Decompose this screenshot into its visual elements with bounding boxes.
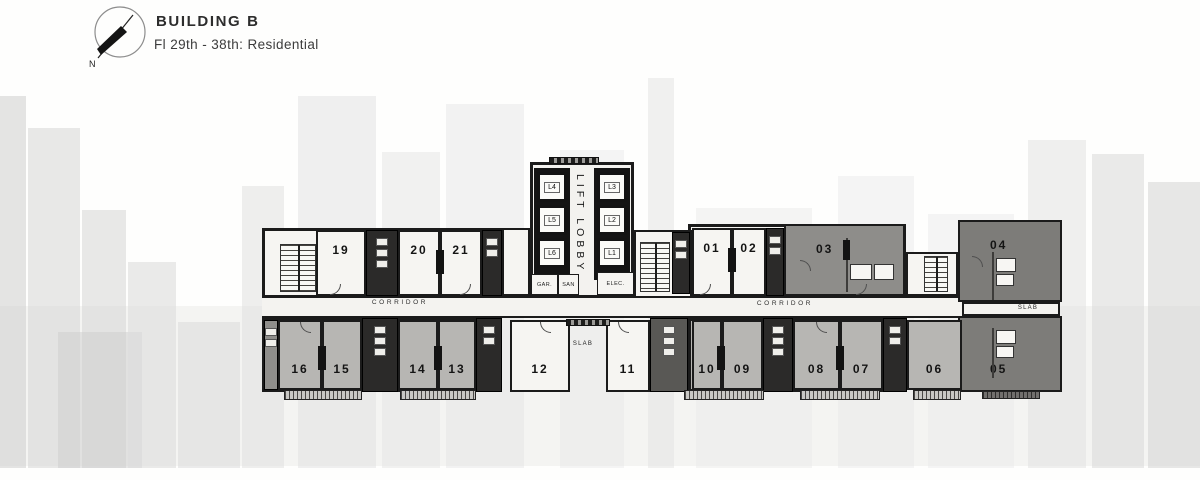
lift-l3[interactable]: L3	[597, 172, 627, 202]
slab-label-center: SLAB	[563, 341, 603, 347]
unit-label: 03	[816, 242, 833, 256]
page-subtitle: Fl 29th - 38th: Residential	[154, 37, 319, 52]
unit-label: 08	[808, 362, 825, 376]
unit-label: 07	[853, 362, 870, 376]
unit-label: 19	[332, 243, 349, 257]
skyline-building	[1148, 182, 1200, 468]
unit-09[interactable]: 09	[722, 320, 763, 390]
balcony	[800, 390, 880, 400]
wall-jamb	[728, 248, 736, 272]
skyline-building	[1092, 154, 1144, 468]
wall-jamb	[836, 346, 844, 370]
bathroom-box	[996, 346, 1014, 358]
stair-west	[280, 244, 316, 292]
partition-line	[992, 252, 994, 300]
unit-08[interactable]: 08	[793, 320, 840, 390]
wall-jamb	[843, 240, 850, 260]
unit-label: 10	[698, 362, 715, 376]
unit-label: 20	[410, 243, 427, 257]
unit-06[interactable]: 06	[907, 320, 962, 390]
unit-label: 02	[740, 241, 757, 255]
louvre-vent	[566, 319, 610, 326]
lift-label: L3	[604, 182, 620, 193]
service-shaft	[763, 318, 793, 392]
unit-15[interactable]: 15	[322, 320, 362, 390]
stair-center	[640, 242, 670, 292]
unit-16[interactable]: 16	[278, 320, 322, 390]
partition-line	[992, 328, 994, 378]
unit-01[interactable]: 01	[692, 228, 732, 296]
page-title: BUILDING B	[156, 13, 260, 30]
unit-label: 04	[990, 238, 1007, 252]
unit-label: 13	[448, 362, 465, 376]
service-shaft	[766, 228, 784, 296]
room-sanitary: SAN	[558, 274, 579, 295]
unit-label: 14	[409, 362, 426, 376]
balcony	[913, 390, 961, 400]
skyline-building	[0, 96, 26, 468]
room-label: GAR.	[537, 282, 552, 288]
stair-east	[924, 256, 948, 292]
unit-label: 06	[926, 362, 943, 376]
unit-label: 09	[734, 362, 751, 376]
room-label: SAN	[562, 282, 575, 288]
lift-label: L5	[544, 215, 560, 226]
unit-label: 01	[703, 241, 720, 255]
bathroom-box	[850, 264, 872, 280]
unit-20[interactable]: 20	[398, 230, 440, 296]
lift-l1[interactable]: L1	[597, 238, 627, 268]
service-shaft	[672, 232, 690, 294]
service-room-west	[502, 228, 530, 296]
lift-label: L6	[544, 248, 560, 259]
lift-l2[interactable]: L2	[597, 205, 627, 235]
unit-19[interactable]: 19	[316, 230, 366, 296]
balcony	[284, 390, 362, 400]
bathroom-box	[996, 330, 1016, 344]
room-garbage: GAR.	[531, 274, 558, 295]
service-shaft	[362, 318, 398, 392]
slab-label-right: SLAB	[998, 305, 1058, 311]
wall-jamb	[318, 346, 326, 370]
floor-plan-page: N BUILDING B Fl 29th - 38th: Residential…	[0, 0, 1200, 480]
unit-label: 12	[531, 362, 548, 376]
north-compass-icon: N	[86, 4, 152, 79]
room-label: ELEC.	[607, 281, 625, 287]
skyline-building	[178, 322, 240, 468]
wall-jamb	[436, 250, 444, 274]
lift-l6[interactable]: L6	[537, 238, 567, 268]
bathroom-box	[996, 258, 1016, 272]
service-shaft	[883, 318, 907, 392]
balcony	[982, 391, 1040, 399]
bathroom-box	[996, 274, 1014, 286]
unit-label: 16	[291, 362, 308, 376]
lift-l5[interactable]: L5	[537, 205, 567, 235]
lift-l4[interactable]: L4	[537, 172, 567, 202]
unit-12[interactable]: 12	[510, 320, 570, 392]
compass-north-label: N	[89, 59, 96, 69]
service-shaft	[366, 230, 398, 296]
unit-label: 21	[452, 243, 469, 257]
lift-label: L2	[604, 215, 620, 226]
unit-label: 15	[333, 362, 350, 376]
unit-label: 11	[620, 362, 637, 376]
wall-jamb	[434, 346, 442, 370]
corridor-label-right: CORRIDOR	[741, 300, 829, 307]
unit-02[interactable]: 02	[732, 228, 766, 296]
room-electrical: ELEC.	[597, 272, 634, 295]
service-shaft	[476, 318, 502, 392]
balcony	[400, 390, 476, 400]
unit-13[interactable]: 13	[438, 320, 476, 390]
service-shaft	[264, 320, 278, 390]
lift-lobby-label: LIFT LOBBY	[574, 174, 586, 273]
service-shaft	[650, 318, 688, 392]
skyline-building	[128, 262, 176, 468]
lift-label: L1	[604, 248, 620, 259]
balcony	[684, 390, 764, 400]
louvre-vent	[549, 157, 599, 164]
bathroom-box	[874, 264, 894, 280]
wall-jamb	[717, 346, 725, 370]
unit-07[interactable]: 07	[840, 320, 883, 390]
lift-label: L4	[544, 182, 560, 193]
corridor-label-left: CORRIDOR	[356, 299, 444, 306]
unit-14[interactable]: 14	[398, 320, 438, 390]
service-shaft	[482, 230, 502, 296]
